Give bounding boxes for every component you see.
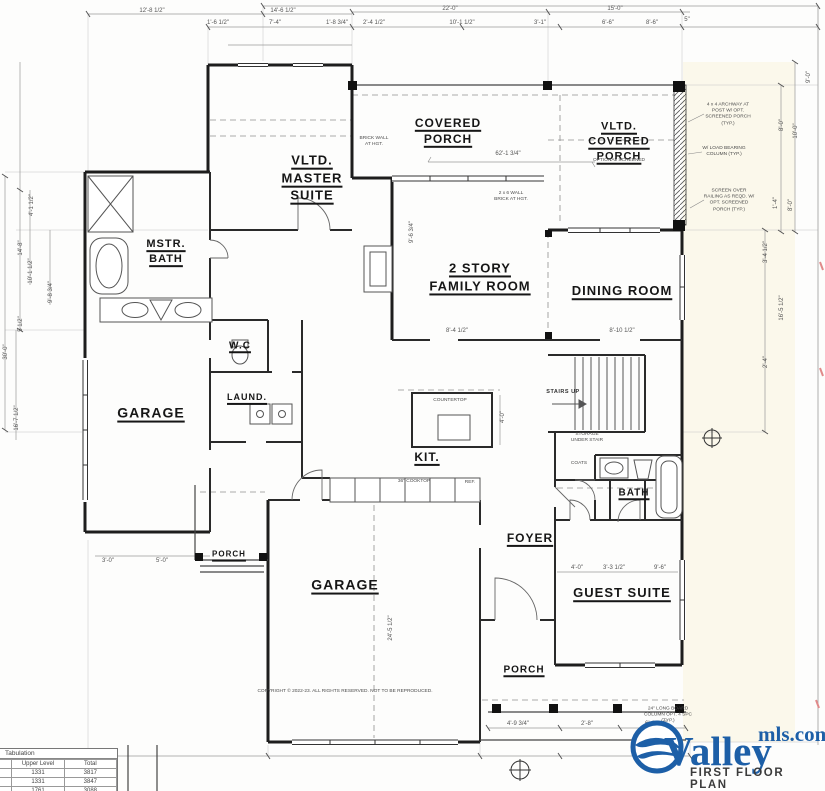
cell-total: 3088 [64,787,116,791]
room-label-porch-rear: PORCH [503,663,544,677]
dim-top: 1'-6 1/2" [207,20,229,26]
scan-marks [816,262,823,708]
dim-family: 8'-4 1/2" [446,328,468,334]
note-screen: SCREEN OVER RAILING AS REQD. W/ OPT. SCR… [702,189,756,214]
cell-upper: 1331 [12,769,64,778]
room-label-wc: W.C [229,339,251,353]
note-optional-screened: OPTIONAL SCREENED [593,158,645,164]
floor-plan-sheet: VLTD. MASTER SUITE COVERED PORCH VLTD. C… [0,0,825,791]
note-brick-wall: BRICK WALL AT HGT. [357,136,391,148]
note-storage: STORAGE UNDER STAIR [567,432,607,444]
room-label-laundry: LAUND. [227,391,267,403]
dim-porch-left: 5'-0" [156,558,168,564]
dim-porch-left: 3'-0" [102,558,114,564]
dim-bottom: 4'-9 3/4" [507,721,529,727]
hatched-wall [674,85,686,225]
dim-top: 6'-6" [602,20,614,26]
scan-tint [683,62,795,742]
note-column: W/ LOAD BEARING COLUMN (TYP.) [696,146,752,158]
dim-right: 8'-0" [788,199,794,211]
table-title: Tabulation [0,749,117,759]
note-ref: REF. [465,480,475,486]
note-stairs-up: STAIRS UP [546,389,579,395]
dim-top: 10'-1 1/2" [449,20,474,26]
interior-walls [210,172,682,742]
table-row: 1761 3088 [0,787,117,791]
dim-top: 12'-8 1/2" [139,8,164,14]
dim-top: 14'-6 1/2" [270,8,295,14]
room-label-foyer: FOYER [507,530,553,546]
note-archway: 4 x 4 ARCHWAY AT POST W/ OPT. SCREENED P… [702,103,754,128]
dim-left: 14'-8" [18,240,24,255]
dim-island: 4'-0" [500,411,506,423]
table-header-row: Upper Level Total [0,760,117,769]
copyright-note: COPYRIGHT © 2022-23. ALL RIGHTS RESERVED… [235,689,455,695]
room-label-kitchen: KIT. [414,449,439,465]
dim-right: 16'-5 1/2" [779,295,785,320]
dim-top: 5" [684,17,689,23]
cell-upper: 1331 [12,778,64,787]
dim-family-height: 9'-6 3/4" [409,221,415,243]
dim-guest: 4'-0" [571,565,583,571]
table-row: 1331 3817 [0,769,117,778]
dim-right: 8'-0" [779,119,785,131]
table-row: 1331 3847 [0,778,117,787]
dim-top: 15'-0" [607,6,622,12]
room-label-garage-left: GARAGE [117,404,184,423]
cell-total: 3847 [64,778,116,787]
room-label-covered-porch: COVERED PORCH [415,115,481,147]
note-cooktop: 36" COOKTOP [398,479,430,485]
dim-left: 9'-8 3/4" [48,281,54,303]
dim-left: 30'-0" [3,344,9,359]
sheet-title: FIRST FLOOR PLAN [690,767,825,791]
dim-right: 1'-4" [773,197,779,209]
dim-right: 3'-4 1/2" [763,241,769,263]
cell-total: 3817 [64,769,116,778]
room-label-bath: BATH [618,486,649,500]
dim-top: 3'-1" [534,20,546,26]
note-2x6-wall: 2 x 6 WALL BRICK AT HGT. [494,191,528,203]
dim-top: 7'-4" [269,20,281,26]
dim-bottom: 2'-8" [581,721,593,727]
dim-porch-length: 62'-1 3/4" [495,151,520,157]
dim-right: 10'-0" [793,123,799,138]
dim-left: 4'-1 1/2" [29,194,35,216]
table-header-upper: Upper Level [12,760,64,769]
dim-right: 9'-0" [806,71,812,83]
dim-top: 1'-8 3/4" [326,20,348,26]
note-countertop: COUNTERTOP [433,398,466,404]
note-coats: COATS [571,461,587,467]
table-header-total: Total [64,760,116,769]
room-label-guest-suite: GUEST SUITE [573,584,671,602]
room-label-garage-main: GARAGE [311,576,378,595]
room-label-dining-room: DINING ROOM [572,282,673,300]
room-label-mstr-bath: MSTR. BATH [146,237,185,267]
dim-dining: 8'-10 1/2" [609,328,634,334]
dim-garage-depth: 24'-5 1/2" [388,615,394,640]
area-tabulation-table: Tabulation Upper Level Total 1331 3817 1… [0,748,118,791]
dim-left: 16'-7 1/2" [14,405,20,430]
brand-mlscom: mls.com [758,722,825,747]
dim-guest: 3'-3 1/2" [603,565,625,571]
dim-top: 2'-4 1/2" [363,20,385,26]
room-label-master-suite: VLTD. MASTER SUITE [282,152,343,205]
room-label-family-room: 2 STORY FAMILY ROOM [429,259,530,294]
dim-top: 22'-0" [442,6,457,12]
dim-left: 10'-1 1/2" [28,258,34,283]
dim-top: 8'-6" [646,20,658,26]
room-label-porch-left: PORCH [212,550,246,561]
cell-upper: 1761 [12,787,64,791]
dim-right: 2'-4" [763,356,769,368]
dim-left: 5 1/2" [18,316,24,331]
dim-guest: 9'-6" [654,565,666,571]
table-header-cut [0,760,12,769]
